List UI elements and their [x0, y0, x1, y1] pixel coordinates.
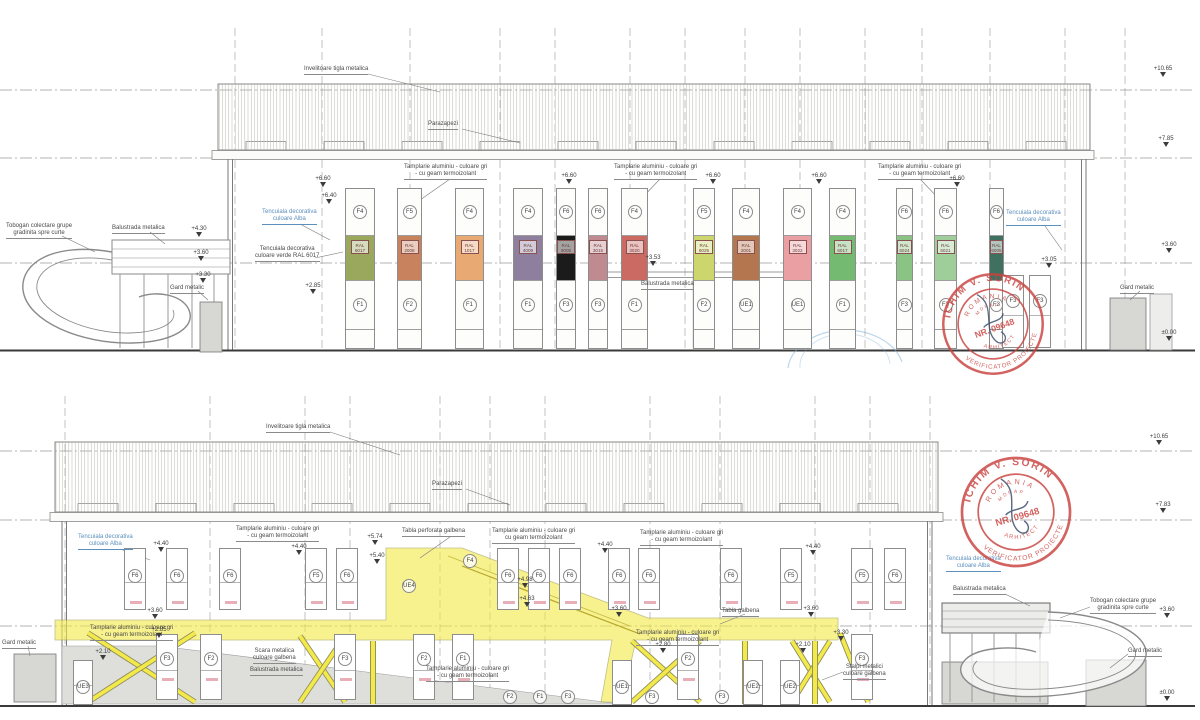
annotation-label: Tencuiala decorativa culoare Alba: [1006, 210, 1061, 226]
pink-annotation-mark: [726, 601, 738, 604]
window-tag: F1: [836, 298, 850, 312]
window-tag: F6: [340, 569, 354, 583]
pink-annotation-mark: [342, 601, 354, 604]
annotation-label: Tamplarie aluminiu - culoare gri - cu ge…: [614, 164, 697, 180]
annotation-label: Invelitoare tigla metalica: [304, 66, 368, 75]
lower-window: F3: [334, 634, 356, 700]
window-pane-top: F4: [784, 189, 811, 236]
annotation-label: Gard metalic: [1128, 648, 1162, 657]
window-tag: F6: [612, 569, 626, 583]
pink-annotation-mark: [225, 601, 237, 604]
window-tag: F3: [645, 690, 659, 704]
colored-panel: RAL 6024: [897, 236, 912, 280]
elevation-mark: +5.40: [364, 553, 390, 567]
leader-line: [420, 179, 450, 200]
elevation-mark: +2.10: [790, 642, 816, 656]
window-tag: UE2: [746, 680, 760, 694]
window-pane-top: F6: [897, 189, 912, 236]
window-tag: UE1: [739, 298, 753, 312]
elevation-mark: +4.98: [512, 577, 538, 591]
elevation-triangle-icon: [1156, 440, 1162, 448]
window-pane-low: [589, 329, 607, 347]
annotation-label: Scara metalica culoare galbena: [253, 648, 296, 664]
door: UE1: [612, 660, 632, 705]
elevation-triangle-icon: [1166, 248, 1172, 256]
facade-module: F5RAL 6025F2: [693, 188, 715, 349]
annotation-label: Parazapezi: [428, 121, 458, 130]
window-pane-low: [733, 329, 759, 347]
elevation-triangle-icon: [954, 182, 960, 190]
elevation-triangle-icon: [650, 261, 656, 269]
window-tag: F6: [990, 205, 1003, 219]
door: UE2: [743, 660, 763, 705]
annotation-label: Tamplarie aluminiu - culoare gri - cu ge…: [426, 666, 509, 682]
stamp-name: ICHIM V. SORIN: [935, 266, 1029, 322]
elevation-mark: +4.40: [800, 544, 826, 558]
pink-annotation-mark: [565, 601, 577, 604]
ral-label: RAL 3022: [789, 240, 807, 254]
facade-module: F5RAL 2008F2: [397, 188, 422, 349]
window-pane-top: F5: [398, 189, 421, 236]
window-tag: F3: [561, 690, 575, 704]
ral-label: RAL 6024: [897, 240, 912, 254]
pink-annotation-mark: [172, 601, 184, 604]
window-tag: F2: [503, 690, 517, 704]
window-tag: F2: [697, 298, 711, 312]
annotation-label: Tabla galbena: [722, 608, 759, 617]
colored-panel: RAL 4009: [514, 236, 542, 280]
window-tag: F3: [160, 652, 174, 666]
elevation-triangle-icon: [816, 179, 822, 187]
elevation-triangle-icon: [198, 256, 204, 264]
window-pane-low: [830, 329, 855, 347]
elevation-mark: +3.60: [1154, 607, 1180, 621]
ral-label: RAL 2008: [401, 240, 419, 254]
window-pane-top: F4: [830, 189, 855, 236]
lower-window: F2: [200, 634, 222, 700]
elevation-mark: +3.60: [1156, 242, 1182, 256]
elevation-triangle-icon: [1163, 142, 1169, 150]
window-tag: F6: [888, 569, 902, 583]
elevation-triangle-icon: [800, 648, 806, 656]
window-pane-bottom: F1: [456, 280, 483, 329]
annotation-label: Gard metalic: [170, 285, 204, 294]
facade-module: F6RAL 6024F3: [896, 188, 913, 349]
annotation-label: Tencuiala decorativa culoare verde RAL 6…: [255, 246, 320, 262]
window-tag: F6: [170, 569, 184, 583]
colored-panel: RAL 2008: [398, 236, 421, 280]
annotation-label: Invelitoare tigla metalica: [266, 424, 330, 433]
annotation-label: Tamplarie aluminiu - culoare gri - cu ge…: [636, 630, 719, 646]
window-pane-low: [456, 329, 483, 347]
facade-module: F4RAL 1017F1: [455, 188, 484, 349]
elevation-mark: +6.60: [700, 173, 726, 187]
window-tag: F3: [715, 690, 729, 704]
window-pane-low: [557, 329, 575, 347]
window-pane-bottom: F2: [694, 280, 714, 329]
window-tag: F1: [463, 298, 477, 312]
annotation-label: Balustrada metalica: [250, 667, 303, 676]
window-tag: F1: [456, 652, 470, 666]
elevation-triangle-icon: [660, 648, 666, 656]
window-pane-top: F6: [935, 189, 956, 236]
window-tag: F5: [309, 569, 323, 583]
elevation-triangle-icon: [810, 550, 816, 558]
window-tag: F4: [463, 554, 477, 568]
window-tag: F4: [791, 205, 805, 219]
elevation-triangle-icon: [602, 548, 608, 556]
window-pane-top: F6: [589, 189, 607, 236]
window-tag: F1: [533, 690, 547, 704]
colored-panel: RAL 9005: [557, 236, 575, 280]
door: UE2: [780, 660, 800, 705]
annotation-label: Balustrada metalica: [112, 225, 165, 234]
pink-annotation-mark: [206, 678, 218, 681]
colored-panel: RAL 3015: [589, 236, 607, 280]
annotation-label: Tamplarie aluminiu - culoare gri cu geam…: [492, 528, 575, 544]
window-tag: F2: [403, 298, 417, 312]
annotation-label: Tobogan colectare grupe gradinita spre c…: [1090, 598, 1156, 614]
window-tag: F6: [223, 569, 237, 583]
elevation-triangle-icon: [372, 540, 378, 548]
ral-label: RAL 6021: [937, 240, 955, 254]
elevation-triangle-icon: [616, 612, 622, 620]
elevation-mark: +2.85: [300, 283, 326, 297]
elevation-triangle-icon: [296, 550, 302, 558]
colored-panel: RAL 6025: [694, 236, 714, 280]
elevation-mark: +10.65: [1150, 66, 1176, 80]
ral-label: RAL 3015: [589, 240, 607, 254]
window-tag: F6: [898, 205, 912, 219]
window-pane-bottom: UE1: [733, 280, 759, 329]
annotation-label: Tamplarie aluminiu - culoare gri - cu ge…: [236, 526, 319, 542]
annotation-label: Tencuiala decorativa culoare Alba: [262, 209, 317, 225]
facade-module: F4RAL 6017F1: [829, 188, 856, 349]
window-tag: F3: [591, 298, 605, 312]
window-tag: UE4: [402, 579, 416, 593]
annotation-label: Tabla perforata galbena: [402, 528, 465, 537]
window-pane-top: F5: [694, 189, 714, 236]
window-tag: F2: [417, 652, 431, 666]
elevation-mark: +6.40: [316, 193, 342, 207]
annotation-label: Tamplarie aluminiu - culoare gri - cu ge…: [640, 530, 723, 546]
elevation-mark: +10.65: [1146, 434, 1172, 448]
elevation-triangle-icon: [522, 583, 528, 591]
annotation-label: Balustrada metalica: [641, 281, 694, 290]
window-pane-low: [784, 329, 811, 347]
annotation-label: Tamplarie aluminiu - culoare gri - cu ge…: [404, 164, 487, 180]
elevation-mark: +3.60: [798, 606, 824, 620]
window-tag: F2: [204, 652, 218, 666]
window-pane-bottom: UE1: [784, 280, 811, 329]
lower-window: F3: [156, 634, 178, 700]
elevation-triangle-icon: [1166, 336, 1172, 344]
window-pane-bottom: F3: [897, 280, 912, 329]
window-pane-bottom: F1: [346, 280, 374, 329]
window-pane-top: F4: [622, 189, 647, 236]
architect-stamp-top: ICHIM V. SORIN ROMANIA MDRAP NR. 09648 A…: [935, 266, 1051, 382]
window-tag: F4: [521, 205, 535, 219]
window-tag: F3: [898, 298, 912, 312]
ral-label: RAL 6017: [351, 240, 369, 254]
window-tag: F2: [681, 652, 695, 666]
elevation-mark: +3.53: [640, 255, 666, 269]
facade-module: F4RAL 2001UE1: [732, 188, 760, 349]
pink-annotation-mark: [786, 601, 798, 604]
pink-annotation-mark: [857, 601, 869, 604]
window-tag: F6: [642, 569, 656, 583]
elevation-mark: +6.60: [310, 176, 336, 190]
window-tag: F5: [784, 569, 798, 583]
window-pane-bottom: F2: [398, 280, 421, 329]
metal-fence-left-top: [200, 302, 222, 352]
leader-line: [1045, 226, 1062, 250]
annotation-label: Stalpi metalici culoare galbena: [843, 664, 886, 680]
facade-module: F4RAL 4009F1: [513, 188, 543, 349]
elevation-mark: +7.85: [1153, 136, 1179, 150]
colored-panel: RAL 3022: [784, 236, 811, 280]
window-tag: F1: [628, 298, 642, 312]
elevation-mark: +3.60: [142, 608, 168, 622]
pink-annotation-mark: [130, 601, 142, 604]
window-pane-top: F4: [456, 189, 483, 236]
elevation-triangle-icon: [158, 547, 164, 555]
elevation-triangle-icon: [1160, 72, 1166, 80]
window-pane-bottom: F3: [557, 280, 575, 329]
architect-stamp-bottom: ICHIM V. SORIN ROMANIA MDRAP NR. 09648 A…: [953, 449, 1079, 575]
window-tag: F6: [724, 569, 738, 583]
window-tag: F4: [739, 205, 753, 219]
annotation-label: Tobogan colectare grupe gradinita spre c…: [6, 223, 72, 239]
elevation-triangle-icon: [1164, 696, 1170, 704]
annotation-label: Parazapezi: [432, 481, 462, 490]
ral-label: RAL 9005: [557, 240, 575, 254]
window-pane-low: [346, 329, 374, 347]
window-tag: UE2: [783, 680, 797, 694]
elevation-mark: +6.60: [806, 173, 832, 187]
pink-annotation-mark: [162, 678, 174, 681]
elevation-mark: +4.30: [186, 226, 212, 240]
annotation-label: Gard metalic: [2, 640, 36, 649]
elevation-triangle-icon: [156, 633, 162, 641]
elevation-triangle-icon: [1160, 508, 1166, 516]
elevation-mark: +7.83: [1150, 502, 1176, 516]
window-pane-low: [694, 329, 714, 347]
colored-panel: RAL 6017: [346, 236, 374, 280]
colored-panel: RAL 2001: [733, 236, 759, 280]
window-pane-top: F4: [733, 189, 759, 236]
window-tag: F6: [939, 205, 953, 219]
elevation-mark: +3.60: [606, 606, 632, 620]
elevation-mark: +6.60: [556, 173, 582, 187]
elevation-mark: +4.40: [592, 542, 618, 556]
elevation-triangle-icon: [320, 182, 326, 190]
pink-annotation-mark: [311, 601, 323, 604]
window-tag: F4: [836, 205, 850, 219]
ral-label: RAL 6025: [695, 240, 713, 254]
ral-label: RAL 4009: [519, 240, 537, 254]
window-tag: F6: [591, 205, 605, 219]
colored-panel: RAL 1017: [456, 236, 483, 280]
ral-label: RAL 2001: [737, 240, 755, 254]
elevation-triangle-icon: [100, 655, 106, 663]
window-tag: F5: [403, 205, 417, 219]
window-tag: F3: [559, 298, 573, 312]
pink-annotation-mark: [614, 601, 626, 604]
leader-line: [822, 672, 843, 680]
elevation-mark: +3.30: [190, 272, 216, 286]
window-pane-bottom: F3: [589, 280, 607, 329]
pink-annotation-mark: [644, 601, 656, 604]
annotation-label: Tencuiala decorativa culoare Alba: [78, 534, 133, 550]
ral-label: RAL 6017: [834, 240, 852, 254]
elevation-triangle-icon: [374, 559, 380, 567]
elevation-mark: +3.30: [828, 630, 854, 644]
window-tag: F1: [353, 298, 367, 312]
elevation-mark: +5.74: [362, 534, 388, 548]
window-pane-bottom: F1: [514, 280, 542, 329]
elevation-mark: +4.40: [148, 541, 174, 555]
elevation-mark: +4.63: [514, 596, 540, 610]
elevation-mark: +2.80: [650, 642, 676, 656]
annotation-label: Balustrada metalica: [953, 586, 1006, 595]
svg-text:ARHITECT: ARHITECT: [1002, 523, 1043, 546]
window-tag: UE3: [76, 680, 90, 694]
top-elevation-roof: [212, 84, 1094, 160]
elevation-mark: +2.85: [146, 627, 172, 641]
facade-module: F6RAL 9005F3: [556, 188, 576, 349]
window-pane-top: F6: [990, 189, 1003, 236]
window-pane-bottom: F1: [830, 280, 855, 329]
facade-module: F4RAL 3022UE1: [783, 188, 812, 349]
elevation-mark: +2.10: [90, 649, 116, 663]
pink-annotation-mark: [683, 678, 695, 681]
ral-label: RAL 1017: [461, 240, 479, 254]
metal-fence-left-bottom: [14, 654, 56, 702]
leader-line: [300, 224, 330, 240]
colored-panel: RAL 6017: [830, 236, 855, 280]
window-tag: UE1: [791, 298, 805, 312]
elevation-mark: +4.40: [286, 544, 312, 558]
window-tag: F4: [463, 205, 477, 219]
elevation-triangle-icon: [196, 232, 202, 240]
ral-label: RAL 6005: [990, 240, 1003, 254]
window-tag: F3: [338, 652, 352, 666]
window-tag: F6: [563, 569, 577, 583]
elevation-triangle-icon: [838, 636, 844, 644]
window-pane-low: [514, 329, 542, 347]
elevation-triangle-icon: [566, 179, 572, 187]
bottom-elevation-roof: [50, 442, 943, 522]
pink-annotation-mark: [890, 601, 902, 604]
elevation-triangle-icon: [152, 614, 158, 622]
svg-text:ICHIM V. SORIN: ICHIM V. SORIN: [935, 266, 1029, 322]
elevation-triangle-icon: [710, 179, 716, 187]
elevation-triangle-icon: [808, 612, 814, 620]
window-tag: UE1: [615, 680, 629, 694]
elevation-mark: ±0.00: [1156, 330, 1182, 344]
window-pane-low: [398, 329, 421, 347]
elevation-triangle-icon: [200, 278, 206, 286]
facade-module: F6RAL 3015F3: [588, 188, 608, 349]
elevation-triangle-icon: [524, 602, 530, 610]
window-pane-low: [897, 329, 912, 347]
elevation-triangle-icon: [1164, 613, 1170, 621]
door: UE3: [73, 660, 93, 705]
pink-annotation-mark: [340, 678, 352, 681]
window-tag: F1: [521, 298, 535, 312]
ral-label: RAL 3020: [626, 240, 644, 254]
window-tag: F4: [353, 205, 367, 219]
elevation-triangle-icon: [310, 289, 316, 297]
architectural-drawing-sheet: F4RAL 6017F1F5RAL 2008F2F4RAL 1017F1F4RA…: [0, 0, 1200, 720]
window-pane-low: [622, 329, 647, 347]
stamp-number: NR. 09648: [973, 316, 1016, 340]
elevation-mark: +6.60: [944, 176, 970, 190]
elevation-mark: +3.60: [188, 250, 214, 264]
window-tag: F6: [559, 205, 573, 219]
annotation-label: Gard metalic: [1120, 285, 1154, 294]
stamp-title: ARHITECT: [1002, 523, 1043, 546]
window-tag: F6: [128, 569, 142, 583]
elevation-triangle-icon: [326, 199, 332, 207]
facade-module: F4RAL 6017F1: [345, 188, 375, 349]
window-pane-top: F4: [514, 189, 542, 236]
spiral-slide-right: [942, 603, 1146, 706]
window-pane-top: F6: [557, 189, 575, 236]
window-pane-top: F4: [346, 189, 374, 236]
window-tag: F5: [697, 205, 711, 219]
window-tag: F4: [628, 205, 642, 219]
window-tag: F5: [855, 569, 869, 583]
elevation-mark: ±0.00: [1154, 690, 1180, 704]
